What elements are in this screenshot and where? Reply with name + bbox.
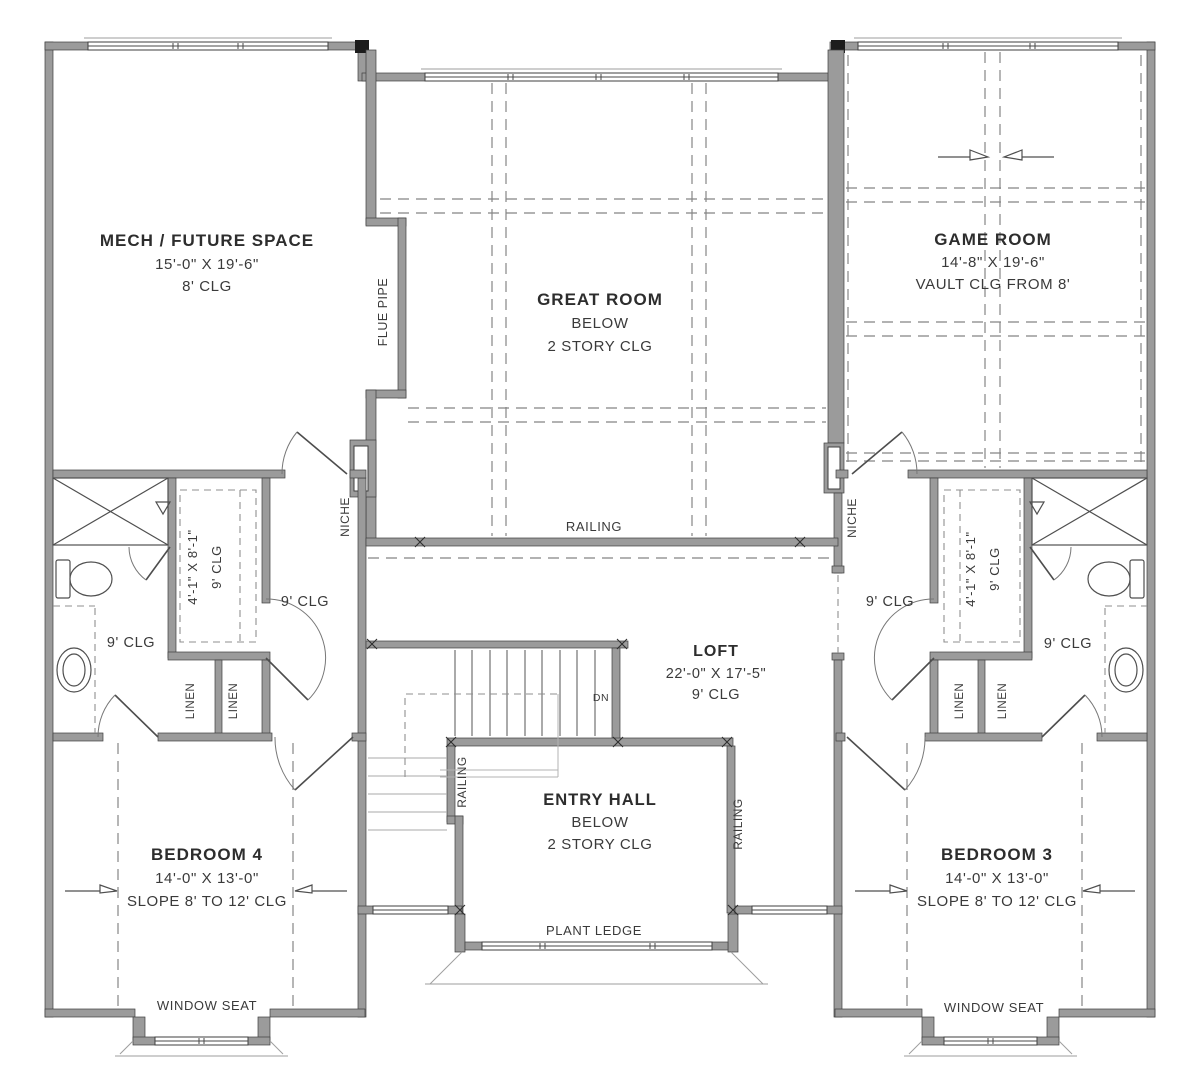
window-game-room [854, 38, 1122, 50]
label-niche-left: NICHE [338, 497, 352, 537]
label-closet-left-dims: 4'-1" X 8'-1" [185, 529, 200, 604]
label-railing-great: RAILING [566, 519, 622, 534]
ridge-arrow-left [938, 150, 988, 160]
window-plant-ledge-bay [482, 942, 712, 950]
toilet-right [1088, 560, 1144, 598]
room-label-bed4: BEDROOM 4 [151, 845, 263, 864]
room-label-great: GREAT ROOM [537, 290, 663, 309]
label-closet-left-clg: 9' CLG [209, 545, 224, 589]
sink-left [57, 648, 91, 692]
room-clg-game: VAULT CLG FROM 8' [916, 276, 1071, 293]
room-label-game: GAME ROOM [934, 230, 1052, 249]
room-label-loft: LOFT [693, 643, 739, 660]
window-front-right [752, 906, 827, 914]
label-linen-right-2: LINEN [997, 683, 1009, 719]
room-slope-bed3: SLOPE 8' TO 12' CLG [917, 893, 1077, 910]
room-slope-bed4: SLOPE 8' TO 12' CLG [127, 893, 287, 910]
label-linen-right-1: LINEN [954, 683, 966, 719]
room-dims-game: 14'-8" X 19'-6" [941, 254, 1045, 271]
label-closet-right-clg: 9' CLG [987, 547, 1002, 591]
room-clg-mech: 8' CLG [182, 278, 232, 295]
window-great-room [421, 69, 782, 81]
door-bath-right [1042, 695, 1102, 737]
railing-posts [367, 537, 805, 915]
label-stairs-dn: DN [593, 692, 609, 704]
room-label-bed3: BEDROOM 3 [941, 845, 1053, 864]
label-9clg-bath-right: 9' CLG [1044, 636, 1092, 652]
label-flue-pipe: FLUE PIPE [376, 278, 390, 346]
label-niche-right: NICHE [845, 498, 859, 538]
room-label-mech: MECH / FUTURE SPACE [100, 231, 314, 250]
toilet-left [56, 560, 112, 598]
label-linen-left-2: LINEN [228, 683, 240, 719]
window-front-left [373, 906, 448, 914]
room-label-entry: ENTRY HALL [543, 791, 657, 809]
room-clg-entry: 2 STORY CLG [548, 836, 653, 853]
stair-railing-wall [366, 641, 628, 648]
door-bedroom3 [847, 737, 925, 790]
label-9clg-hall-right: 9' CLG [866, 594, 914, 610]
label-railing-stair: RAILING [455, 756, 469, 808]
room-below-great: BELOW [571, 315, 628, 332]
room-dims-mech: 15'-0" X 19'-6" [155, 256, 259, 273]
door-bedroom4 [275, 737, 353, 790]
door-closet-left [266, 599, 326, 700]
niche-right [824, 443, 844, 493]
window-mech [84, 38, 332, 50]
label-window-seat-left: WINDOW SEAT [157, 998, 257, 1013]
shower-right [1030, 478, 1147, 545]
label-9clg-hall-left: 9' CLG [281, 594, 329, 610]
label-plant-ledge: PLANT LEDGE [546, 923, 642, 938]
slope-arrow-bed3-right [1083, 885, 1135, 893]
room-dims-bed3: 14'-0" X 13'-0" [945, 870, 1049, 887]
window-seat-bay-left [155, 1037, 248, 1045]
room-clg-loft: 9' CLG [692, 687, 740, 703]
label-window-seat-right: WINDOW SEAT [944, 1000, 1044, 1015]
ridge-arrow-right [1004, 150, 1054, 160]
label-linen-left-1: LINEN [185, 683, 197, 719]
room-dims-loft: 22'-0" X 17'-5" [666, 666, 767, 682]
window-seat-bay-right [944, 1037, 1037, 1045]
slope-arrow-bed3-left [855, 885, 907, 893]
label-railing-entry: RAILING [731, 798, 745, 850]
door-shower-right [1030, 547, 1071, 580]
entry-railing-wall [447, 738, 733, 746]
door-bath-left [98, 695, 158, 737]
label-9clg-bath-left: 9' CLG [107, 635, 155, 651]
sink-right [1109, 648, 1143, 692]
door-closet-right [874, 599, 934, 700]
door-mech [282, 432, 347, 474]
door-shower-left [129, 547, 170, 580]
room-below-entry: BELOW [571, 814, 628, 831]
slope-arrow-bed4-left [65, 885, 117, 893]
label-closet-right-dims: 4'-1" X 8'-1" [963, 531, 978, 606]
room-clg-great: 2 STORY CLG [548, 338, 653, 355]
stairs-below-cut [368, 758, 447, 830]
shower-left [53, 478, 170, 545]
slope-arrow-bed4-right [295, 885, 347, 893]
floor-plan-drawing: MECH / FUTURE SPACE 15'-0" X 19'-6" 8' C… [0, 0, 1200, 1082]
room-dims-bed4: 14'-0" X 13'-0" [155, 870, 259, 887]
loft-railing-wall [366, 538, 838, 546]
floor-plan-page: MECH / FUTURE SPACE 15'-0" X 19'-6" 8' C… [0, 0, 1200, 1082]
